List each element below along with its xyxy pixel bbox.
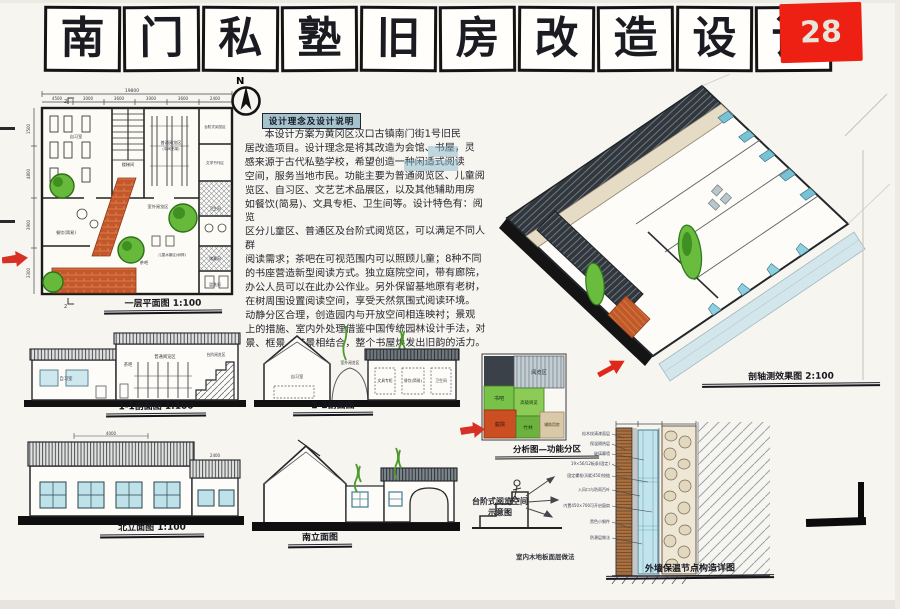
room-label: 茶吧: [124, 361, 133, 368]
room-label: 台阶式阅览区: [204, 124, 226, 129]
room-label: 室外阅览区: [148, 203, 169, 210]
marker-highlight: [404, 160, 458, 171]
zone-label: 竹林: [523, 424, 533, 431]
wall-detail-label: 外墙保温节点构造详图: [606, 560, 774, 580]
scan-edge-bottom: [0, 600, 900, 609]
annotation: 保温隔热层: [590, 440, 610, 446]
annotation: 入风口与防雨百叶: [578, 486, 610, 492]
section-2-2-label: 2-2剖面图: [293, 398, 373, 417]
elevation-arch-opening: [410, 488, 448, 522]
dim: 3000: [83, 96, 94, 101]
room-label: 储藏间: [209, 256, 221, 261]
dim: 2400: [210, 96, 221, 101]
elevation-main-roof: [28, 442, 194, 466]
annotation: 固定螺栓(间距450)铰链: [567, 472, 610, 478]
annotation: 松木纹清漆面层: [582, 430, 610, 436]
room-label: 餐饮(简易): [56, 229, 76, 236]
scan-edge-right: [895, 0, 900, 609]
ground-line: [252, 522, 460, 531]
annotation: 玻璃幕墙: [594, 450, 610, 456]
room-label: 室外阅览区: [341, 360, 360, 365]
elevation-gable: [264, 446, 346, 522]
annotation: 内置450×700可开启窗扇: [563, 502, 610, 508]
presentation-board: 南 门 私 塾 旧 房 改 造 设 计 28 N: [0, 0, 900, 609]
marker-highlight: [428, 146, 458, 157]
sheet-number-badge: 28: [779, 2, 863, 63]
plan-marker-bottom: 2: [64, 304, 67, 310]
plan-brick-patio: [52, 268, 136, 293]
dim: 1500: [26, 123, 31, 134]
section-cut-mark: [0, 220, 15, 223]
zone-label: 庭院: [495, 420, 506, 428]
dim: 2400: [210, 453, 221, 458]
room-label: 普通阅览区: [154, 353, 176, 360]
detail-existing-wall-hatch: [698, 422, 770, 578]
title-char: 私: [202, 6, 279, 73]
wall-detail-side-note: 室内木地板面层做法: [516, 551, 578, 561]
north-elevation-drawing: 4000 2400: [16, 430, 248, 534]
section-1-1-label: 1-1剖面图 1:100: [106, 398, 206, 417]
title-char: 造: [597, 6, 674, 73]
north-elevation-label: 北立面图 1:100: [100, 519, 204, 538]
steps-sketch-label-line2: 示意图: [466, 507, 534, 518]
corner-mark-horizontal: [806, 517, 866, 527]
room-label: 餐饮(简易): [404, 378, 423, 383]
dim: 3000: [146, 96, 157, 101]
room-label: 自习室: [291, 373, 304, 380]
room-label: 自习室: [70, 133, 83, 140]
sheet-title: 南 门 私 塾 旧 房 改 造 设 计: [44, 6, 832, 72]
room-label: 自习室: [60, 375, 74, 382]
pencil-line: [843, 92, 889, 138]
steps-sketch-label-line1: 台阶式阅览空间: [466, 496, 534, 507]
elevation-side-roof: [190, 460, 240, 478]
scan-edge-top: [0, 0, 900, 3]
room-label: 台阶阅览区: [207, 352, 226, 357]
title-char: 房: [439, 6, 516, 73]
title-char: 改: [518, 6, 595, 73]
room-label: 茶吧: [140, 259, 149, 265]
room-label: (中间书架): [162, 146, 180, 151]
annotation: 19×56/12板条(固定): [571, 460, 611, 466]
dim: 3600: [178, 96, 189, 101]
detail-glass-layer: [638, 430, 658, 574]
dim: 4800: [26, 168, 31, 179]
section-right-roof: [114, 333, 240, 344]
room-label: 卫生间: [435, 378, 447, 383]
red-arrow: [460, 422, 486, 438]
dim: 3600: [114, 96, 125, 101]
elevation-right-roof: [381, 468, 457, 481]
title-char: 门: [123, 6, 200, 73]
title-char: 旧: [360, 6, 437, 73]
room-label: 普通阅览区: [161, 139, 182, 146]
dim: 4500: [52, 96, 63, 101]
notes-header: 设计理念及设计说明: [262, 113, 361, 129]
title-char: 塾: [281, 6, 358, 73]
title-char: 设: [676, 6, 753, 73]
room-label: 文学书刊区: [206, 160, 224, 165]
dim: 4000: [106, 431, 117, 436]
zone-label: 高级阅览: [520, 399, 538, 406]
zone-label: 书吧: [494, 394, 505, 402]
room-label: 儿童水景区(树阵): [158, 252, 187, 257]
dim: 3300: [26, 267, 31, 278]
axon-label: 剖轴测效果图 2:100: [702, 368, 880, 388]
annotation: 黑色小钢件: [590, 518, 610, 524]
detail-wood-batten-layer: [616, 428, 632, 576]
south-elevation-label: 南立面图: [288, 530, 352, 549]
red-arrow: [2, 250, 29, 268]
annotation: 防潮层做法: [590, 534, 610, 540]
title-char: 南: [44, 6, 121, 73]
section-cut-mark: [0, 127, 15, 130]
plan-dims-top: 4500 3000 3600 3000 3600 2400: [52, 96, 221, 101]
floor-plan-label: 一层平面图 1:100: [104, 295, 222, 314]
room-label: 盥洗间: [209, 282, 221, 287]
room-label: 文具专柜: [377, 378, 392, 383]
south-elevation-drawing: [248, 428, 466, 540]
red-arrow: [596, 356, 628, 378]
room-label: 卫生间: [209, 206, 221, 211]
section-left-roof: [30, 349, 118, 360]
section-right-roof: [365, 349, 459, 360]
pencil-line: [862, 150, 864, 380]
axonometric-drawing: [498, 74, 894, 384]
plan-marker-top: 2: [64, 99, 67, 105]
dim: 3900: [26, 219, 31, 230]
zone-label: 阅览区: [531, 368, 547, 376]
room-label: 楼梯间: [122, 161, 135, 168]
zoning-block-dark: [484, 356, 514, 386]
plan-overall-dim: 19800: [125, 88, 139, 94]
section-moon-gate: [332, 368, 368, 400]
detail-annotations: 松木纹清漆面层 保温隔热层 玻璃幕墙 19×56/12板条(固定) 固定螺栓(间…: [563, 430, 610, 540]
floor-plan-drawing: 19800 4500 3000 3600 3000 3600 2400 1500…: [24, 86, 242, 318]
